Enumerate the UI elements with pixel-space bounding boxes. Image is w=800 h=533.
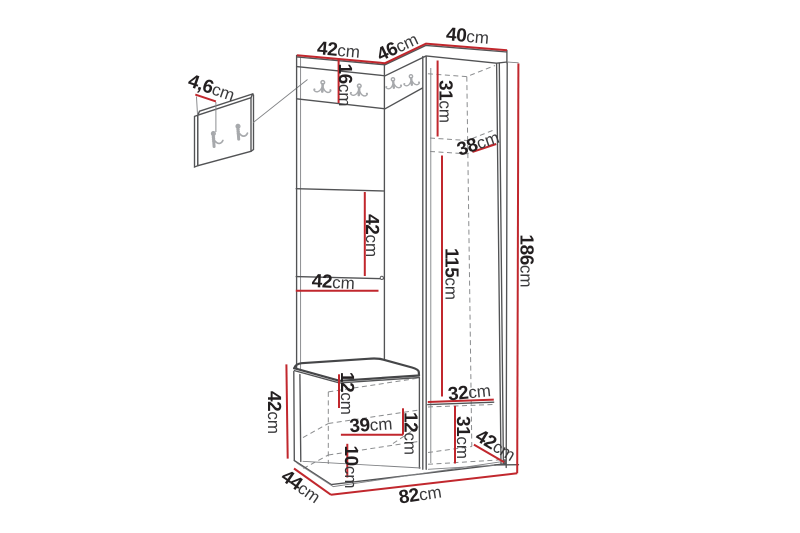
- svg-text:12cm: 12cm: [336, 372, 357, 415]
- svg-text:42cm: 42cm: [263, 391, 284, 434]
- svg-text:12cm: 12cm: [400, 412, 421, 455]
- svg-text:31cm: 31cm: [452, 416, 473, 459]
- svg-text:186cm: 186cm: [515, 234, 536, 287]
- svg-text:115cm: 115cm: [440, 248, 461, 300]
- svg-text:40cm: 40cm: [445, 24, 490, 49]
- svg-text:42cm: 42cm: [361, 214, 382, 257]
- svg-text:42cm: 42cm: [311, 271, 355, 294]
- svg-text:10cm: 10cm: [340, 445, 361, 488]
- svg-text:16cm: 16cm: [334, 63, 355, 106]
- svg-text:39cm: 39cm: [349, 413, 393, 437]
- svg-text:31cm: 31cm: [435, 80, 456, 123]
- svg-text:42cm: 42cm: [316, 38, 361, 63]
